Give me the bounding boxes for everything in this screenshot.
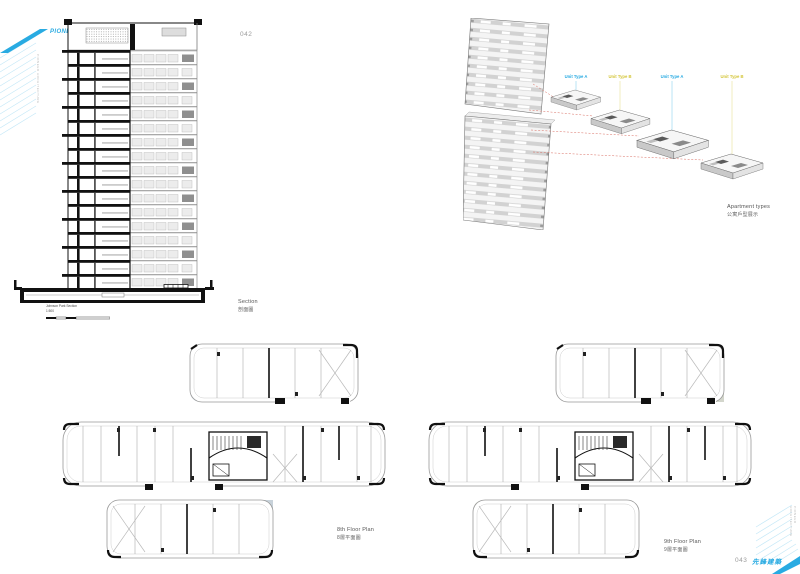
scale-bar <box>46 316 110 320</box>
unit-type-label-3: Unit Type A <box>661 74 684 79</box>
section-label: Section <box>238 299 258 305</box>
section-caption: Johnson Park Section 1:500 <box>46 304 77 314</box>
plan9-label-block: 9th Floor Plan 9層平面圖 <box>664 538 701 554</box>
presentation-page: PIONEER ARCHITECTURE 042 PIONEER ARCHITE… <box>0 0 800 574</box>
plan8-label-block: 8th Floor Plan 8層平面圖 <box>337 526 374 542</box>
unit-type-label-4: Unit Type B <box>721 74 744 79</box>
edge-microtext-right: PIONEER ARCHITECTURE <box>789 506 797 554</box>
floor-plan-9 <box>429 344 751 558</box>
page-number-left: 042 <box>240 31 252 38</box>
tower-section <box>14 19 214 303</box>
section-caption-scale: 1:500 <box>46 309 77 314</box>
section-drawing <box>14 14 214 306</box>
page-number-right: 043 <box>735 557 747 564</box>
section-label-block: Section 剖面圖 <box>238 298 258 314</box>
apartment-types-label-block: Apartment types 公寓戶型展示 <box>727 203 770 219</box>
axon-unit-labels: Unit Type A Unit Type B Unit Type A Unit… <box>565 74 744 79</box>
unit-type-label-1: Unit Type A <box>565 74 588 79</box>
unit-type-label-2: Unit Type B <box>609 74 632 79</box>
axon-unit-modules <box>551 90 763 179</box>
plan8-label: 8th Floor Plan <box>337 527 374 533</box>
plan8-label-cn: 8層平面圖 <box>337 535 374 543</box>
brand-name-cn: 先鋒建築 <box>752 556 782 566</box>
plan9-label-cn: 9層平面圖 <box>664 547 701 555</box>
axon-tower <box>463 18 555 230</box>
section-label-cn: 剖面圖 <box>238 307 258 315</box>
floor-plans-drawing <box>57 336 758 571</box>
apartment-types-label-cn: 公寓戶型展示 <box>727 212 770 220</box>
axon-drawing: Unit Type A Unit Type B Unit Type A Unit… <box>463 18 783 230</box>
plan9-label: 9th Floor Plan <box>664 539 701 545</box>
apartment-types-label: Apartment types <box>727 204 770 210</box>
